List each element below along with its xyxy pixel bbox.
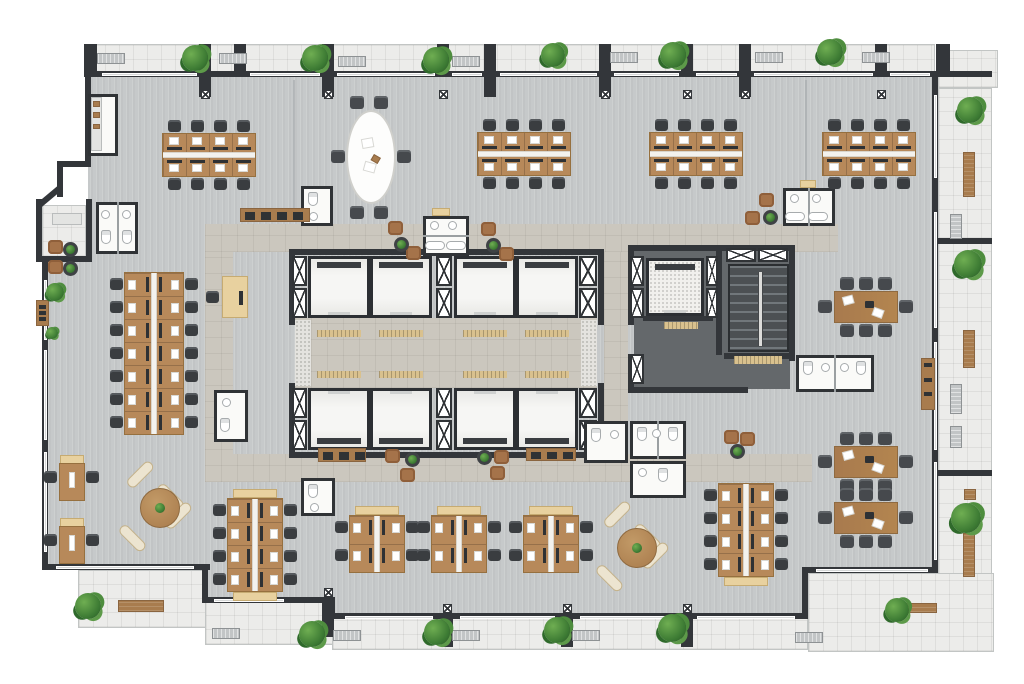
elevator-back-wall	[655, 264, 695, 270]
basin-icon	[808, 212, 828, 221]
end-cabinet	[60, 518, 84, 527]
paper-icon	[830, 137, 838, 143]
paper-icon	[271, 576, 277, 584]
door-marker-icon	[324, 90, 333, 99]
plant-icon	[182, 45, 208, 71]
plant-icon	[658, 614, 686, 642]
office-chair	[214, 178, 227, 190]
wall	[628, 387, 748, 393]
armchair	[385, 449, 400, 463]
meeting-chair	[859, 488, 873, 501]
paper-icon	[239, 138, 247, 144]
paper-icon	[873, 308, 884, 318]
monitor-icon	[896, 146, 911, 149]
plant-icon	[817, 39, 843, 65]
paper-icon	[271, 553, 277, 561]
elevator-back-wall	[379, 262, 423, 268]
office-chair	[552, 177, 565, 189]
elevator-door	[474, 312, 496, 315]
armchair	[724, 430, 739, 444]
shaft-icon	[758, 248, 788, 262]
door-mat	[317, 371, 361, 378]
armchair	[388, 221, 403, 235]
monitor-icon	[70, 536, 74, 550]
paper-icon	[723, 561, 729, 569]
granite-floor	[581, 320, 597, 386]
paper-icon	[853, 137, 861, 143]
shaft-icon	[706, 288, 718, 318]
office-chair	[86, 471, 99, 483]
door-marker-icon	[683, 604, 692, 613]
monitor-icon	[146, 300, 149, 315]
paper-icon	[271, 530, 277, 538]
partition	[423, 235, 469, 237]
shelf-item	[924, 378, 932, 382]
office-chair	[851, 177, 864, 189]
office-chair	[185, 278, 198, 290]
office-chair	[874, 119, 887, 131]
armchair	[400, 468, 415, 482]
monitor-icon	[543, 548, 546, 563]
partition	[657, 421, 659, 459]
paper-icon	[531, 137, 539, 143]
side-table	[477, 450, 492, 465]
monitor-icon	[369, 520, 372, 535]
monitor-icon	[213, 147, 228, 150]
office-chair	[704, 558, 717, 570]
office-chair	[506, 177, 519, 189]
office-chair	[86, 534, 99, 546]
basin-icon	[446, 241, 466, 250]
paper-icon	[475, 524, 481, 532]
monitor-icon	[464, 548, 467, 563]
door-marker-icon	[324, 588, 333, 597]
plant-icon	[885, 598, 909, 622]
desk-divider	[478, 151, 570, 157]
cabinet	[432, 208, 450, 216]
bench	[964, 489, 976, 500]
plant-icon	[544, 617, 570, 643]
monitor-icon	[236, 160, 251, 163]
monitor-icon	[751, 488, 754, 503]
monitor-icon	[159, 346, 162, 361]
plant-icon	[489, 241, 498, 250]
wall	[802, 567, 808, 617]
paper-icon	[726, 137, 734, 143]
monitor-icon	[146, 346, 149, 361]
counter-item	[93, 124, 100, 129]
door-marker-icon	[563, 604, 572, 613]
plant-icon	[954, 250, 982, 278]
office-chair	[678, 177, 691, 189]
elevator-door	[664, 310, 686, 313]
office-chair	[214, 120, 227, 132]
wall	[938, 238, 992, 244]
door-mat	[317, 330, 361, 337]
glass-partition	[805, 80, 807, 180]
meeting-chair	[818, 511, 832, 524]
end-cabinet	[355, 506, 399, 515]
paper-icon	[362, 138, 373, 148]
shaft-icon	[630, 256, 644, 286]
window	[345, 616, 433, 619]
monitor-icon	[70, 473, 74, 487]
hvac-unit	[219, 53, 247, 64]
shaft-icon	[436, 288, 452, 318]
office-chair	[529, 119, 542, 131]
hvac-unit	[950, 426, 962, 448]
paper-icon	[239, 165, 247, 171]
office-chair	[701, 119, 714, 131]
plant-icon	[66, 264, 75, 273]
door-mat	[463, 371, 507, 378]
elevator-car	[454, 256, 516, 318]
door-mat	[463, 330, 507, 337]
paper-icon	[172, 419, 178, 427]
sink-icon	[840, 363, 849, 372]
office-chair	[483, 177, 496, 189]
plant-icon	[66, 245, 75, 254]
paper-icon	[129, 304, 135, 312]
elevator-car	[308, 256, 370, 318]
plant-icon	[46, 283, 64, 301]
meeting-chair	[818, 455, 832, 468]
plant-icon	[408, 455, 417, 464]
monitor-icon	[260, 526, 263, 541]
window	[337, 73, 435, 76]
bench	[963, 152, 975, 197]
elevator-car	[454, 388, 516, 450]
monitor-icon	[505, 146, 520, 149]
desk-divider	[743, 484, 749, 576]
paper-icon	[703, 137, 711, 143]
monitor-icon	[236, 147, 251, 150]
shaft-icon	[292, 388, 307, 418]
basin-icon	[425, 241, 445, 250]
sink-icon	[430, 221, 439, 230]
elevator-back-wall	[317, 438, 361, 444]
window	[934, 212, 937, 328]
office-chair	[897, 177, 910, 189]
paper-icon	[657, 164, 665, 170]
monitor-icon	[873, 146, 888, 149]
paper-icon	[680, 137, 688, 143]
monitor-icon	[369, 548, 372, 563]
monitor-icon	[146, 369, 149, 384]
hvac-unit	[950, 214, 962, 239]
paper-icon	[843, 507, 854, 516]
paper-icon	[170, 138, 178, 144]
monitor-icon	[654, 159, 669, 162]
desk-cluster	[650, 133, 742, 175]
window	[934, 462, 937, 560]
paper-icon	[899, 137, 907, 143]
printer-icon	[547, 452, 557, 459]
paper-icon	[172, 304, 178, 312]
plant-icon	[632, 543, 642, 553]
office-chair	[110, 324, 123, 336]
office-chair	[828, 119, 841, 131]
office-chair	[775, 512, 788, 524]
door-mat	[664, 322, 698, 329]
paper-icon	[528, 524, 534, 532]
paper-icon	[129, 419, 135, 427]
meeting-table	[835, 447, 897, 477]
basin-icon	[785, 212, 805, 221]
hvac-unit	[862, 52, 890, 63]
office-chair	[580, 521, 593, 533]
laptop-icon	[865, 456, 874, 463]
monitor-icon	[850, 146, 865, 149]
office-chair	[335, 521, 348, 533]
toilet-icon	[591, 428, 601, 442]
monitor-icon	[738, 534, 741, 549]
office-chair	[206, 291, 219, 303]
desk-cluster	[432, 516, 486, 572]
shaft-icon	[579, 256, 597, 286]
armchair	[499, 247, 514, 261]
bench	[963, 533, 975, 577]
office-chair	[185, 416, 198, 428]
reception-desk	[222, 276, 248, 318]
monitor-icon	[167, 147, 182, 150]
toilet-icon	[308, 484, 318, 498]
plant-icon	[480, 453, 489, 462]
meeting-chair	[878, 535, 892, 548]
plant-icon	[660, 42, 686, 68]
desk-cluster	[350, 516, 404, 572]
desk-divider	[548, 516, 554, 572]
armchair	[740, 432, 755, 446]
paper-icon	[726, 164, 734, 170]
printer-icon	[355, 452, 365, 460]
window	[890, 73, 930, 76]
toilet-icon	[101, 230, 111, 244]
paper-icon	[232, 530, 238, 538]
toilet-icon	[308, 192, 318, 206]
office-chair	[110, 301, 123, 313]
office-chair	[488, 549, 501, 561]
paper-icon	[172, 373, 178, 381]
office-chair	[775, 558, 788, 570]
monitor-icon	[827, 159, 842, 162]
toilet-icon	[637, 427, 647, 441]
office-chair	[580, 549, 593, 561]
counter-item	[93, 112, 100, 118]
office-chair	[704, 535, 717, 547]
monitor-icon	[723, 146, 738, 149]
meeting-chair	[397, 150, 411, 163]
plant-icon	[299, 621, 325, 647]
monitor-icon	[159, 277, 162, 292]
meeting-chair	[374, 96, 388, 109]
paper-icon	[232, 576, 238, 584]
side-table	[405, 452, 420, 467]
wall	[936, 44, 950, 77]
laptop-icon	[865, 512, 874, 519]
office-chair	[191, 178, 204, 190]
office-chair	[552, 119, 565, 131]
shaft-icon	[436, 256, 452, 286]
hvac-unit	[97, 53, 125, 64]
end-cabinet	[233, 592, 277, 601]
monitor-icon	[260, 572, 263, 587]
elevator-door	[474, 391, 496, 394]
printer-icon	[339, 452, 349, 460]
meeting-table	[835, 503, 897, 533]
round-table-set	[599, 510, 675, 586]
desk-divider	[163, 152, 255, 158]
elevator-door	[390, 312, 412, 315]
partition	[117, 202, 119, 254]
printer-icon	[531, 452, 541, 459]
monitor-icon	[654, 146, 669, 149]
elevator-back-wall	[525, 262, 569, 268]
monitor-icon	[751, 534, 754, 549]
office-chair	[185, 324, 198, 336]
office-chair	[704, 512, 717, 524]
office-chair	[185, 370, 198, 382]
shelf-item	[39, 317, 46, 321]
office-chair	[213, 550, 226, 562]
stairwell	[728, 264, 789, 352]
side-table	[763, 210, 778, 225]
sink-icon	[821, 363, 830, 372]
wall	[598, 249, 604, 325]
door-marker-icon	[601, 90, 610, 99]
wall	[789, 245, 795, 361]
plant-icon	[302, 45, 328, 71]
elevator-back-wall	[463, 262, 507, 268]
paper-icon	[170, 165, 178, 171]
desk-divider	[151, 273, 157, 434]
meeting-chair	[899, 455, 913, 468]
monitor-icon	[482, 159, 497, 162]
office-chair	[185, 393, 198, 405]
paper-icon	[657, 137, 665, 143]
meeting-chair	[818, 300, 832, 313]
window	[460, 616, 555, 619]
hvac-unit	[950, 384, 962, 414]
monitor-icon	[738, 488, 741, 503]
office-chair	[110, 347, 123, 359]
shelf-item	[39, 311, 46, 315]
end-cabinet	[233, 489, 277, 498]
elevator-door	[328, 312, 350, 315]
meeting-chair	[878, 324, 892, 337]
shaft-icon	[436, 420, 452, 450]
elevator-door	[328, 391, 350, 394]
round-table-set	[122, 470, 198, 546]
meeting-chair	[331, 150, 345, 163]
meeting-chair	[859, 432, 873, 445]
monitor-icon	[146, 323, 149, 338]
monitor-icon	[159, 369, 162, 384]
office-chair	[185, 301, 198, 313]
door-mat	[525, 330, 569, 337]
paper-icon	[232, 553, 238, 561]
wall	[643, 316, 713, 321]
end-cabinet	[437, 506, 481, 515]
meeting-chair	[840, 535, 854, 548]
paper-icon	[853, 164, 861, 170]
printer-icon	[261, 212, 271, 220]
wall	[484, 44, 496, 97]
office-chair	[775, 535, 788, 547]
shaft-icon	[630, 354, 644, 384]
bench	[963, 330, 975, 368]
counter-item	[93, 101, 100, 107]
plant-icon	[46, 327, 58, 339]
door-marker-icon	[201, 90, 210, 99]
monitor-icon	[551, 146, 566, 149]
glass-partition	[293, 80, 295, 222]
end-cabinet	[724, 577, 768, 586]
hvac-unit	[452, 56, 480, 67]
printer-icon	[323, 452, 333, 460]
paper-icon	[680, 164, 688, 170]
plant-icon	[733, 447, 742, 456]
paper-icon	[172, 327, 178, 335]
hvac-unit	[755, 52, 783, 63]
office-chair	[168, 120, 181, 132]
printer-icon	[563, 452, 573, 459]
armchair	[406, 246, 421, 260]
hvac-unit	[610, 52, 638, 63]
paper-icon	[762, 538, 768, 546]
office-chair	[237, 178, 250, 190]
washroom	[584, 421, 628, 463]
meeting-chair	[840, 432, 854, 445]
monitor-icon	[239, 291, 243, 305]
desk-cluster	[125, 273, 183, 434]
paper-icon	[393, 552, 399, 560]
toilet-icon	[856, 361, 866, 375]
monitor-icon	[700, 159, 715, 162]
elevator-car	[516, 256, 578, 318]
paper-icon	[393, 524, 399, 532]
shaft-icon	[292, 420, 307, 450]
sink-icon	[638, 468, 647, 477]
window	[934, 95, 937, 178]
door-marker-icon	[443, 604, 452, 613]
counter	[52, 213, 82, 225]
monitor-icon	[738, 511, 741, 526]
meeting-chair	[840, 324, 854, 337]
office-chair	[828, 177, 841, 189]
meeting-chair	[878, 432, 892, 445]
paper-icon	[723, 515, 729, 523]
toilet-icon	[668, 427, 678, 441]
desk-divider	[650, 151, 742, 157]
meeting-chair	[878, 488, 892, 501]
paper-icon	[193, 138, 201, 144]
window	[816, 569, 928, 572]
window	[696, 73, 737, 76]
meeting-chair	[878, 277, 892, 290]
paper-icon	[876, 137, 884, 143]
paper-icon	[703, 164, 711, 170]
desk-divider	[456, 516, 462, 572]
office-chair	[213, 573, 226, 585]
stair-rail	[758, 272, 763, 346]
window	[44, 350, 47, 440]
office-chair	[704, 489, 717, 501]
printer-icon	[277, 212, 287, 220]
meeting-chair	[899, 511, 913, 524]
window	[452, 73, 482, 76]
office-chair	[284, 550, 297, 562]
